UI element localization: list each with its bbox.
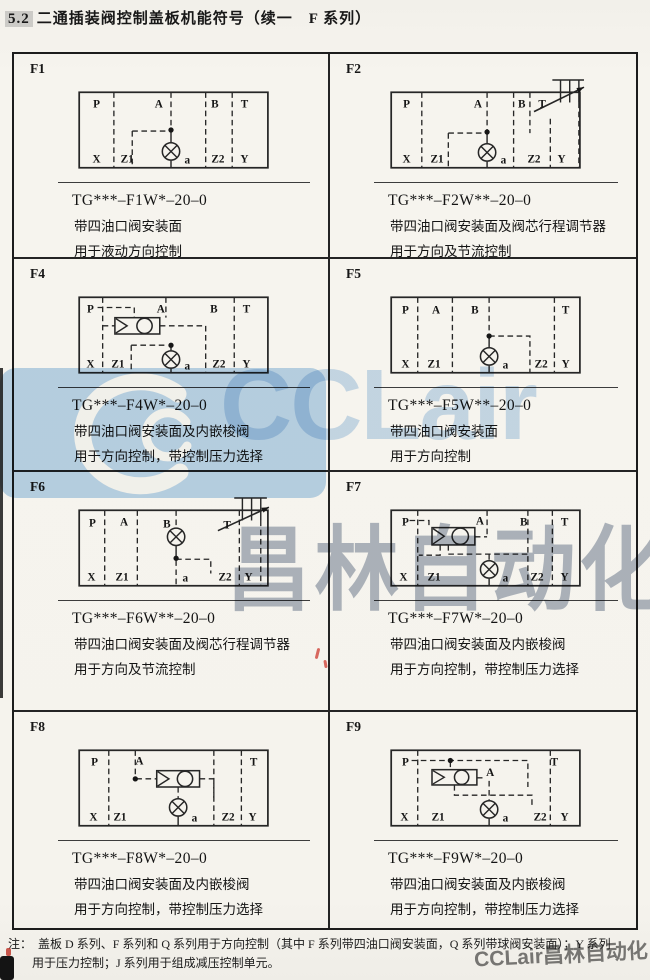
model-code: TG***–F1W*–20–0: [72, 192, 328, 210]
description-line: 用于方向控制，带控制压力选择: [390, 658, 636, 678]
port-label: Y: [244, 572, 252, 584]
description-line: 用于方向及节流控制: [74, 658, 328, 678]
description-line: 带四油口阀安装面: [390, 420, 636, 440]
cell-id-label: F7: [346, 479, 636, 495]
diagram-area: PABTXZ1aZ2Y: [14, 496, 328, 598]
cell-id-label: F8: [30, 719, 328, 735]
diagram-area: PATXZ1aZ2Y: [14, 736, 328, 838]
port-label: a: [503, 813, 509, 825]
port-label: Y: [562, 359, 570, 371]
port-label: X: [400, 812, 408, 824]
cell-F4: F4PABTXZ1aZ2YTG***–F4W*–20–0带四油口阀安装面及内嵌梭…: [14, 259, 330, 472]
divider-line: [374, 387, 618, 388]
port-label: X: [401, 359, 409, 371]
page-title-text: 二通插装阀控制盖板机能符号（续一 F 系列）: [37, 11, 371, 27]
port-label: Y: [561, 812, 569, 824]
port-label: T: [551, 757, 559, 769]
model-code: TG***–F4W*–20–0: [72, 397, 328, 415]
port-label: Z1: [111, 359, 124, 371]
section-number: 5.2: [5, 11, 33, 27]
port-label: X: [89, 812, 97, 824]
port-label: P: [402, 305, 409, 317]
pilot-plug-symbol: [480, 561, 497, 578]
description-line: 用于液动方向控制: [74, 240, 328, 259]
port-label: a: [185, 155, 191, 167]
port-label: Y: [249, 812, 257, 824]
description-line: 用于方向及节流控制: [390, 240, 636, 259]
port-label: Z1: [431, 154, 444, 166]
cell-id-label: F2: [346, 61, 636, 77]
hydraulic-symbol-diagram: PABTXZ1aZ2Y: [69, 78, 273, 180]
pilot-plug-symbol: [169, 799, 186, 816]
port-label: X: [87, 572, 95, 584]
diagram-area: PABTXZ1aZ2Y: [330, 496, 636, 598]
port-label: B: [163, 519, 171, 531]
cell-id-label: F5: [346, 266, 636, 282]
port-label: Y: [557, 154, 565, 166]
description-line: 用于方向控制，带控制压力选择: [74, 445, 328, 465]
port-label: a: [182, 573, 188, 585]
port-label: B: [520, 517, 528, 529]
description-line: 带四油口阀安装面及阀芯行程调节器: [74, 633, 328, 653]
pilot-plug-symbol: [162, 143, 179, 160]
shuttle-valve-symbol: [115, 318, 160, 334]
diagram-area: PABTXZ1aZ2Y: [14, 78, 328, 180]
port-label: a: [503, 360, 509, 372]
port-label: T: [250, 757, 258, 769]
pilot-plug-symbol: [167, 528, 184, 545]
model-code: TG***–F9W*–20–0: [388, 850, 636, 868]
model-code: TG***–F6W**–20–0: [72, 610, 328, 628]
port-label: T: [538, 99, 546, 111]
model-code: TG***–F2W**–20–0: [388, 192, 636, 210]
hydraulic-symbol-diagram: PATXZ1aZ2Y: [381, 736, 585, 838]
port-label: X: [402, 154, 410, 166]
model-code: TG***–F5W**–20–0: [388, 397, 636, 415]
port-label: P: [89, 518, 96, 530]
shuttle-valve-symbol: [157, 771, 200, 787]
port-label: X: [92, 154, 100, 166]
cell-id-label: F6: [30, 479, 328, 495]
hydraulic-symbol-diagram: PATXZ1aZ2Y: [69, 736, 273, 838]
diagram-area: PATXZ1aZ2Y: [330, 736, 636, 838]
cell-F7: F7PABTXZ1aZ2YTG***–F7W*–20–0带四油口阀安装面及内嵌梭…: [330, 472, 636, 712]
port-label: P: [402, 757, 409, 769]
port-label: T: [223, 520, 231, 532]
description-line: 带四油口阀安装面及阀芯行程调节器: [390, 215, 636, 235]
port-label: Z2: [531, 572, 544, 584]
description-line: 用于方向控制，带控制压力选择: [74, 898, 328, 918]
cell-id-label: F1: [30, 61, 328, 77]
description-line: 带四油口阀安装面及内嵌梭阀: [74, 873, 328, 893]
hydraulic-symbol-diagram: PABTXZ1aZ2Y: [381, 78, 585, 180]
divider-line: [58, 600, 310, 601]
port-label: A: [120, 517, 129, 529]
pilot-plug-symbol: [478, 144, 495, 161]
divider-line: [58, 840, 310, 841]
divider-line: [58, 182, 310, 183]
port-label: A: [476, 516, 485, 528]
divider-line: [374, 600, 618, 601]
port-label: Z2: [527, 154, 540, 166]
port-label: a: [503, 573, 509, 585]
cell-F9: F9PATXZ1aZ2YTG***–F9W*–20–0带四油口阀安装面及内嵌梭阀…: [330, 712, 636, 928]
cell-F6: F6PABTXZ1aZ2YTG***–F6W**–20–0带四油口阀安装面及阀芯…: [14, 472, 330, 712]
port-label: a: [192, 813, 198, 825]
port-label: T: [241, 99, 249, 111]
divider-line: [58, 387, 310, 388]
port-label: Z1: [113, 812, 126, 824]
port-label: B: [471, 305, 479, 317]
port-label: B: [518, 99, 526, 111]
port-label: a: [501, 155, 507, 167]
port-label: Y: [561, 572, 569, 584]
cell-F1: F1PABTXZ1aZ2YTG***–F1W*–20–0带四油口阀安装面用于液动…: [14, 54, 330, 259]
port-label: Z2: [534, 812, 547, 824]
description-line: 用于方向控制，带控制压力选择: [390, 898, 636, 918]
port-label: P: [403, 99, 410, 111]
scan-smudge-artifact: [0, 956, 14, 980]
port-label: A: [135, 756, 144, 768]
model-code: TG***–F7W*–20–0: [388, 610, 636, 628]
port-label: B: [211, 99, 219, 111]
port-label: T: [561, 517, 569, 529]
diagram-area: PABTXZ1aZ2Y: [14, 283, 328, 385]
port-label: A: [486, 767, 495, 779]
hydraulic-symbol-diagram: PABTXZ1aZ2Y: [69, 283, 273, 385]
cell-F5: F5PABTXZ1aZ2YTG***–F5W**–20–0带四油口阀安装面用于方…: [330, 259, 636, 472]
scanned-document-page: 5.2二通插装阀控制盖板机能符号（续一 F 系列） F1PABTXZ1aZ2YT…: [0, 0, 650, 980]
diagram-area: PABTXZ1aZ2Y: [330, 78, 636, 180]
port-label: A: [155, 99, 164, 111]
symbol-table: F1PABTXZ1aZ2YTG***–F1W*–20–0带四油口阀安装面用于液动…: [12, 52, 638, 930]
port-label: Z2: [222, 812, 235, 824]
cell-F2: F2PABTXZ1aZ2YTG***–F2W**–20–0带四油口阀安装面及阀芯…: [330, 54, 636, 259]
pilot-plug-symbol: [480, 348, 497, 365]
red-pen-dot: [6, 948, 11, 956]
cell-id-label: F9: [346, 719, 636, 735]
port-label: Z1: [116, 572, 129, 584]
port-label: A: [432, 305, 441, 317]
description-line: 带四油口阀安装面及内嵌梭阀: [74, 420, 328, 440]
description-line: 带四油口阀安装面及内嵌梭阀: [390, 873, 636, 893]
port-label: A: [157, 304, 166, 316]
port-label: Y: [240, 154, 248, 166]
port-label: P: [402, 517, 409, 529]
hydraulic-symbol-diagram: PABTXZ1aZ2Y: [381, 283, 585, 385]
port-label: Z1: [428, 572, 441, 584]
port-label: Z1: [121, 154, 134, 166]
diagram-area: PABTXZ1aZ2Y: [330, 283, 636, 385]
footnote: 注： 盖板 D 系列、F 系列和 Q 系列用于方向控制（其中 F 系列带四油口阀…: [8, 935, 646, 973]
port-label: T: [243, 304, 251, 316]
port-label: X: [399, 572, 407, 584]
port-label: P: [87, 304, 94, 316]
port-label: Z2: [211, 154, 224, 166]
description-line: 带四油口阀安装面: [74, 215, 328, 235]
scan-edge-artifact: [0, 368, 3, 698]
port-label: P: [93, 99, 100, 111]
port-label: T: [562, 305, 570, 317]
footnote-line2: 用于压力控制；J 系列用于组成减压控制单元。: [32, 954, 646, 973]
pilot-plug-symbol: [162, 351, 179, 368]
port-label: X: [86, 359, 94, 371]
footnote-line1: 注： 盖板 D 系列、F 系列和 Q 系列用于方向控制（其中 F 系列带四油口阀…: [8, 935, 646, 954]
port-label: Z1: [428, 359, 441, 371]
model-code: TG***–F8W*–20–0: [72, 850, 328, 868]
shuttle-valve-symbol: [432, 528, 475, 545]
divider-line: [374, 182, 618, 183]
port-label: Z2: [219, 572, 232, 584]
port-label: B: [210, 304, 218, 316]
port-label: P: [91, 757, 98, 769]
port-label: a: [185, 361, 191, 373]
port-label: Z2: [535, 359, 548, 371]
page-title: 5.2二通插装阀控制盖板机能符号（续一 F 系列）: [5, 7, 371, 28]
port-label: Z2: [212, 359, 225, 371]
port-label: A: [474, 99, 483, 111]
shuttle-valve-symbol: [432, 770, 477, 785]
port-label: Y: [242, 359, 250, 371]
divider-line: [374, 840, 618, 841]
description-line: 用于方向控制: [390, 445, 636, 465]
cell-id-label: F4: [30, 266, 328, 282]
hydraulic-symbol-diagram: PABTXZ1aZ2Y: [69, 496, 273, 598]
cell-F8: F8PATXZ1aZ2YTG***–F8W*–20–0带四油口阀安装面及内嵌梭阀…: [14, 712, 330, 928]
pilot-plug-symbol: [480, 801, 497, 818]
hydraulic-symbol-diagram: PABTXZ1aZ2Y: [381, 496, 585, 598]
port-label: Z1: [432, 812, 445, 824]
description-line: 带四油口阀安装面及内嵌梭阀: [390, 633, 636, 653]
